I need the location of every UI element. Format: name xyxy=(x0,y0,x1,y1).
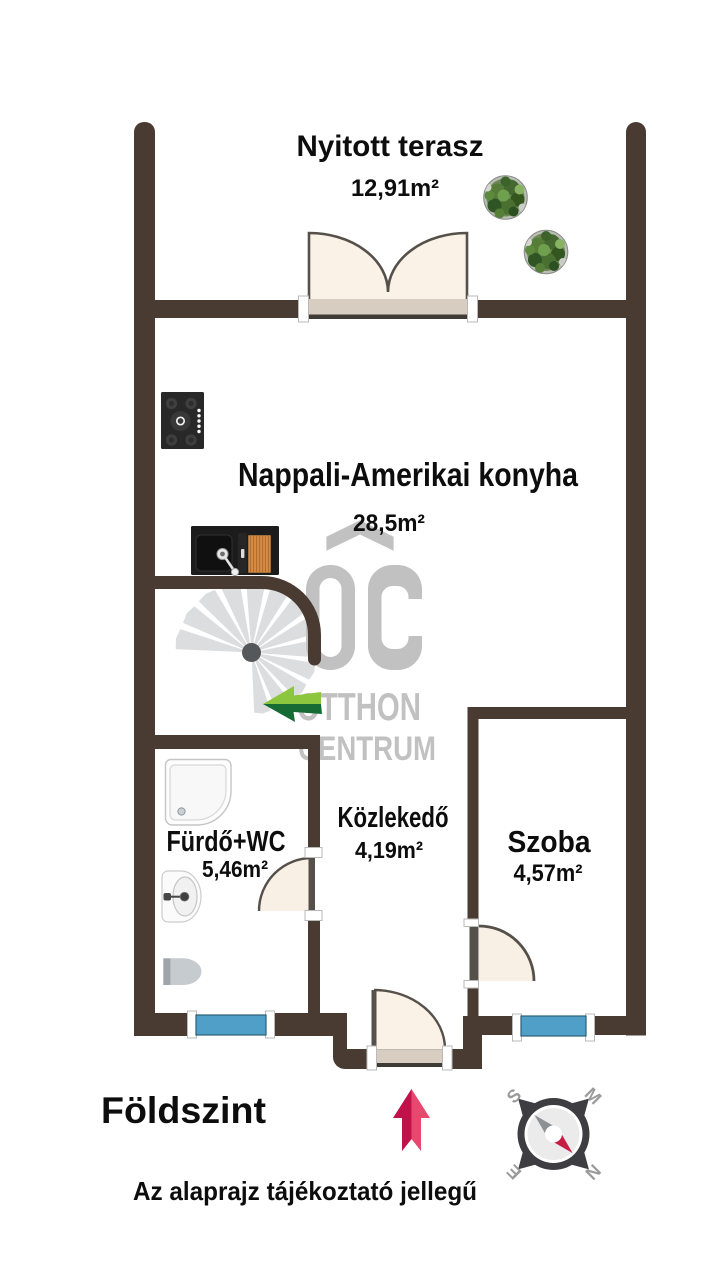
svg-text:Szoba: Szoba xyxy=(508,824,592,859)
svg-text:5,46m²: 5,46m² xyxy=(202,856,268,882)
svg-text:4,19m²: 4,19m² xyxy=(355,837,423,863)
svg-text:Fürdő+WC: Fürdő+WC xyxy=(167,826,286,858)
svg-text:28,5m²: 28,5m² xyxy=(353,510,425,537)
svg-text:Közlekedő: Közlekedő xyxy=(338,802,449,834)
svg-text:4,57m²: 4,57m² xyxy=(514,860,583,887)
svg-text:Az alaprajz tájékoztató jelleg: Az alaprajz tájékoztató jellegű xyxy=(133,1176,477,1206)
svg-text:Nappali-Amerikai konyha: Nappali-Amerikai konyha xyxy=(238,456,579,493)
svg-text:12,91m²: 12,91m² xyxy=(351,175,439,202)
svg-text:Nyitott terasz: Nyitott terasz xyxy=(297,130,484,163)
svg-text:Földszint: Földszint xyxy=(101,1090,266,1131)
